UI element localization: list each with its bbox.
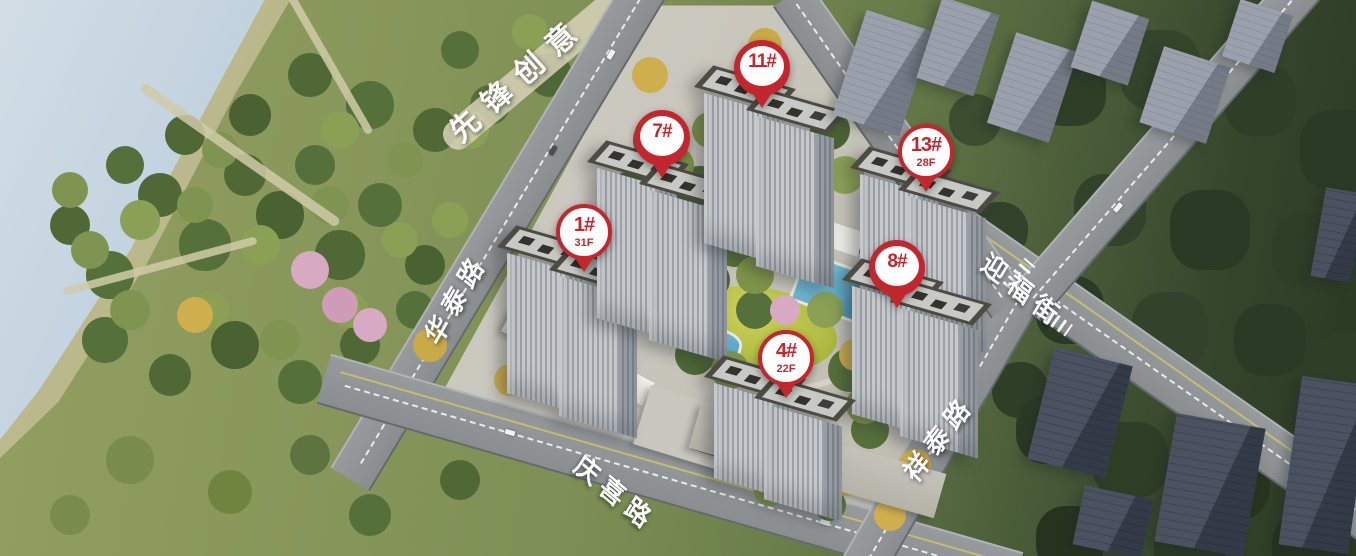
- context-building-dark: [1154, 413, 1265, 556]
- context-building: [1071, 0, 1150, 85]
- pin-floor-count: 31F: [753, 77, 770, 87]
- masterplan-aerial-view: 先锋创意 华泰路 迎福街 祥泰路 庆喜路 1# 31F 4# 22F 7# 31…: [0, 0, 1356, 556]
- pin-building-number: 13#: [911, 135, 941, 155]
- pin-floor-count: 28F: [917, 158, 936, 169]
- pin-circle: 13# 28F: [898, 124, 954, 180]
- pin-floor-count: 31F: [653, 147, 670, 157]
- pin-circle: 8# 26F: [869, 240, 925, 296]
- pin-circle: 4# 22F: [758, 330, 814, 386]
- park-path: [287, 0, 374, 135]
- pin-building-number: 8#: [887, 252, 906, 271]
- pin-building-number: 1#: [574, 215, 594, 235]
- tower-facade: [756, 116, 834, 288]
- pin-building-number: 7#: [652, 122, 671, 141]
- context-building-dark: [1279, 376, 1356, 554]
- pin-building-13[interactable]: 13# 28F: [898, 124, 954, 192]
- pin-building-4[interactable]: 4# 22F: [758, 330, 814, 398]
- context-building-dark: [1073, 485, 1154, 556]
- pin-circle: 1# 31F: [556, 204, 612, 260]
- pin-building-11[interactable]: 11# 31F: [734, 40, 790, 108]
- pin-building-number: 4#: [776, 341, 796, 361]
- pin-building-8[interactable]: 8# 26F: [869, 240, 925, 308]
- context-building-dark: [1310, 187, 1356, 283]
- pin-building-number: 11#: [748, 52, 776, 71]
- pin-circle: 7# 31F: [634, 110, 690, 166]
- blossom-and-autumn-trees: [0, 0, 20, 20]
- context-building-dark: [1027, 347, 1132, 478]
- tower-slab: [762, 386, 844, 499]
- tower-slab: [754, 98, 836, 266]
- pin-floor-count: 22F: [777, 364, 796, 375]
- pin-building-7[interactable]: 7# 31F: [634, 110, 690, 178]
- pin-floor-count: 26F: [888, 277, 905, 287]
- pin-circle: 11# 31F: [734, 40, 790, 96]
- pin-building-1[interactable]: 1# 31F: [556, 204, 612, 272]
- context-building: [987, 32, 1078, 142]
- pin-floor-count: 31F: [575, 238, 594, 249]
- context-building: [916, 0, 999, 96]
